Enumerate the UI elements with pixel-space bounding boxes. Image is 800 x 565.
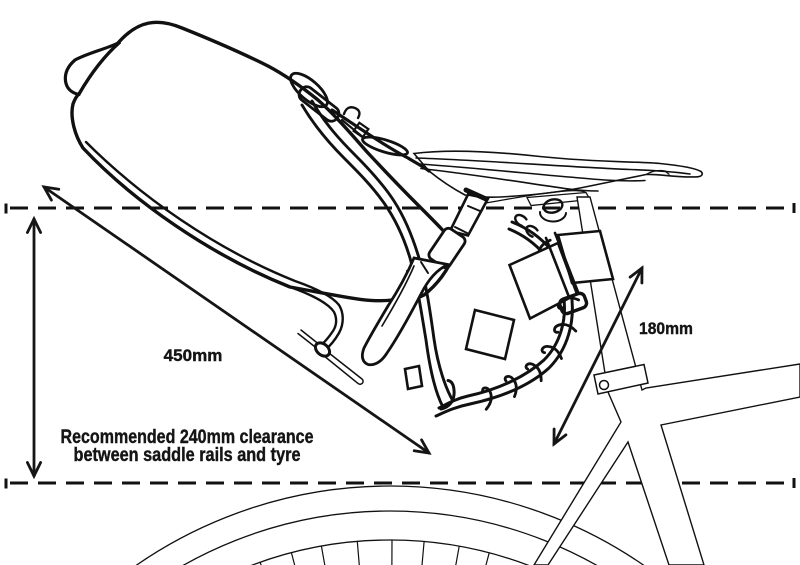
svg-text:450mm: 450mm: [164, 346, 223, 365]
svg-text:between saddle rails and tyre: between saddle rails and tyre: [74, 445, 301, 466]
svg-text:180mm: 180mm: [639, 319, 693, 338]
